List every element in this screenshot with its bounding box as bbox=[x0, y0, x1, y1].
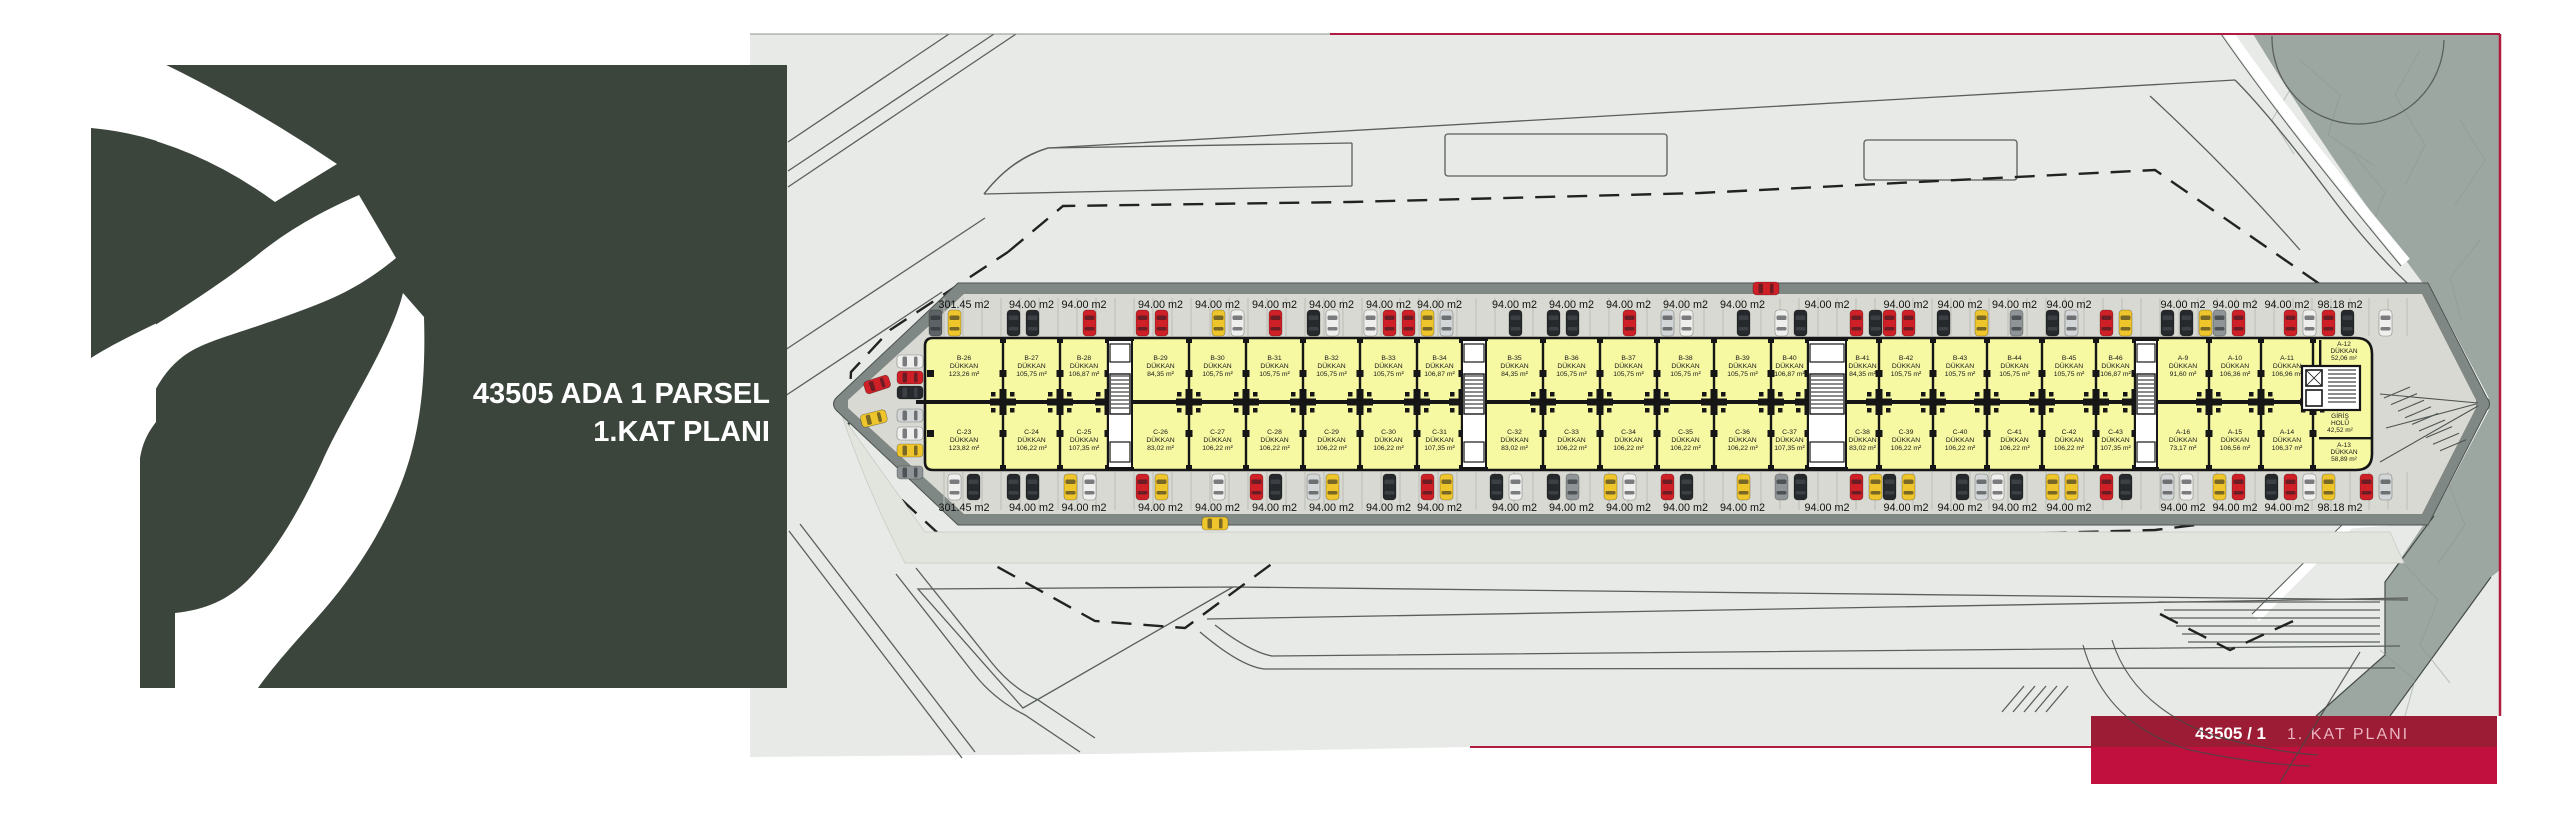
svg-text:94.00 m2: 94.00 m2 bbox=[1937, 299, 1982, 311]
svg-text:94.00 m2: 94.00 m2 bbox=[1309, 502, 1354, 514]
svg-text:DÜKKAN: DÜKKAN bbox=[1260, 436, 1288, 444]
svg-text:94.00 m2: 94.00 m2 bbox=[1366, 502, 1411, 514]
svg-text:94.00 m2: 94.00 m2 bbox=[2160, 299, 2205, 311]
svg-text:B-31: B-31 bbox=[1267, 355, 1282, 362]
svg-text:DÜKKAN: DÜKKAN bbox=[2000, 436, 2028, 444]
svg-text:A-9: A-9 bbox=[2178, 355, 2189, 362]
svg-text:B-34: B-34 bbox=[1432, 355, 1447, 362]
svg-text:105,75 m²: 105,75 m² bbox=[1316, 371, 1347, 378]
svg-text:106,22 m²: 106,22 m² bbox=[1891, 445, 1922, 452]
svg-text:94.00 m2: 94.00 m2 bbox=[1366, 299, 1411, 311]
svg-text:107,35 m²: 107,35 m² bbox=[1424, 445, 1455, 452]
svg-text:94.00 m2: 94.00 m2 bbox=[1009, 299, 1054, 311]
svg-text:DÜKKAN: DÜKKAN bbox=[2221, 362, 2249, 370]
svg-text:B-37: B-37 bbox=[1621, 355, 1636, 362]
svg-text:94.00 m2: 94.00 m2 bbox=[2264, 502, 2309, 514]
svg-text:105,75 m²: 105,75 m² bbox=[1259, 371, 1290, 378]
svg-text:C-34: C-34 bbox=[1621, 429, 1636, 436]
svg-text:C-33: C-33 bbox=[1564, 429, 1579, 436]
svg-text:106,87 m²: 106,87 m² bbox=[1774, 371, 1805, 378]
svg-text:106,87 m²: 106,87 m² bbox=[1424, 371, 1455, 378]
svg-text:94.00 m2: 94.00 m2 bbox=[1252, 299, 1297, 311]
svg-text:106,56 m²: 106,56 m² bbox=[2220, 445, 2251, 452]
svg-text:94.00 m2: 94.00 m2 bbox=[2264, 299, 2309, 311]
svg-text:94.00 m2: 94.00 m2 bbox=[1549, 502, 1594, 514]
svg-text:DÜKKAN: DÜKKAN bbox=[1775, 362, 1803, 370]
svg-text:B-38: B-38 bbox=[1678, 355, 1693, 362]
svg-text:94.00 m2: 94.00 m2 bbox=[1883, 502, 1928, 514]
svg-text:DÜKKAN: DÜKKAN bbox=[2273, 436, 2301, 444]
svg-text:94.00 m2: 94.00 m2 bbox=[1606, 502, 1651, 514]
svg-text:105,75 m²: 105,75 m² bbox=[1670, 371, 1701, 378]
svg-text:105,75 m²: 105,75 m² bbox=[1891, 371, 1922, 378]
svg-text:94.00 m2: 94.00 m2 bbox=[1061, 502, 1106, 514]
svg-text:C-23: C-23 bbox=[957, 429, 972, 436]
svg-text:B-40: B-40 bbox=[1782, 355, 1797, 362]
svg-text:DÜKKAN: DÜKKAN bbox=[1425, 362, 1453, 370]
svg-text:C-26: C-26 bbox=[1153, 429, 1168, 436]
svg-text:DÜKKAN: DÜKKAN bbox=[1374, 362, 1402, 370]
svg-text:DÜKKAN: DÜKKAN bbox=[2055, 436, 2083, 444]
svg-text:DÜKKAN: DÜKKAN bbox=[1614, 362, 1642, 370]
svg-text:DÜKKAN: DÜKKAN bbox=[2221, 436, 2249, 444]
svg-text:B-44: B-44 bbox=[2007, 355, 2022, 362]
svg-text:106,22 m²: 106,22 m² bbox=[1999, 445, 2030, 452]
svg-text:94.00 m2: 94.00 m2 bbox=[1252, 502, 1297, 514]
svg-text:94.00 m2: 94.00 m2 bbox=[1720, 299, 1765, 311]
svg-text:DÜKKAN: DÜKKAN bbox=[1425, 436, 1453, 444]
svg-text:106,22 m²: 106,22 m² bbox=[1373, 445, 1404, 452]
svg-text:C-27: C-27 bbox=[1210, 429, 1225, 436]
svg-text:105,75 m²: 105,75 m² bbox=[1556, 371, 1587, 378]
svg-text:B-46: B-46 bbox=[2108, 355, 2123, 362]
svg-text:52,06 m²: 52,06 m² bbox=[2331, 355, 2357, 362]
svg-text:DÜKKAN: DÜKKAN bbox=[1671, 362, 1699, 370]
svg-text:94.00 m2: 94.00 m2 bbox=[1138, 502, 1183, 514]
svg-text:106,22 m²: 106,22 m² bbox=[1316, 445, 1347, 452]
svg-text:58,89 m²: 58,89 m² bbox=[2331, 456, 2357, 463]
svg-text:94.00 m2: 94.00 m2 bbox=[1492, 502, 1537, 514]
svg-text:105,75 m²: 105,75 m² bbox=[1016, 371, 1047, 378]
svg-text:DÜKKAN: DÜKKAN bbox=[1374, 436, 1402, 444]
svg-text:84,35 m²: 84,35 m² bbox=[1849, 371, 1877, 378]
svg-text:DÜKKAN: DÜKKAN bbox=[1146, 362, 1174, 370]
svg-text:C-37: C-37 bbox=[1782, 429, 1797, 436]
svg-text:106,87 m²: 106,87 m² bbox=[2100, 371, 2131, 378]
svg-text:A-10: A-10 bbox=[2228, 355, 2243, 362]
svg-text:C-28: C-28 bbox=[1267, 429, 1282, 436]
svg-text:94.00 m2: 94.00 m2 bbox=[2046, 502, 2091, 514]
svg-text:94.00 m2: 94.00 m2 bbox=[1883, 299, 1928, 311]
svg-text:123,82 m²: 123,82 m² bbox=[949, 445, 980, 452]
svg-text:94.00 m2: 94.00 m2 bbox=[1492, 299, 1537, 311]
svg-text:1.KAT PLANI: 1.KAT PLANI bbox=[593, 416, 770, 448]
svg-text:94.00 m2: 94.00 m2 bbox=[1606, 299, 1651, 311]
svg-text:107,35 m²: 107,35 m² bbox=[1774, 445, 1805, 452]
svg-text:83,02 m²: 83,02 m² bbox=[1849, 445, 1877, 452]
svg-text:C-31: C-31 bbox=[1432, 429, 1447, 436]
svg-text:DÜKKAN: DÜKKAN bbox=[1317, 362, 1345, 370]
svg-text:106,96 m²: 106,96 m² bbox=[2272, 371, 2303, 378]
svg-text:A-13: A-13 bbox=[2337, 442, 2351, 449]
svg-text:123,26 m²: 123,26 m² bbox=[949, 371, 980, 378]
svg-text:B-39: B-39 bbox=[1735, 355, 1750, 362]
svg-text:B-28: B-28 bbox=[1077, 355, 1092, 362]
svg-text:94.00 m2: 94.00 m2 bbox=[1549, 299, 1594, 311]
svg-text:94.00 m2: 94.00 m2 bbox=[1992, 299, 2037, 311]
svg-text:DÜKKAN: DÜKKAN bbox=[1070, 362, 1098, 370]
svg-text:DÜKKAN: DÜKKAN bbox=[1728, 362, 1756, 370]
svg-text:98.18 m2: 98.18 m2 bbox=[2317, 502, 2362, 514]
svg-text:106,22 m²: 106,22 m² bbox=[1727, 445, 1758, 452]
svg-text:DÜKKAN: DÜKKAN bbox=[1946, 436, 1974, 444]
svg-text:94.00 m2: 94.00 m2 bbox=[1804, 299, 1849, 311]
svg-text:105,75 m²: 105,75 m² bbox=[1727, 371, 1758, 378]
svg-text:DÜKKAN: DÜKKAN bbox=[1500, 436, 1528, 444]
svg-text:105,75 m²: 105,75 m² bbox=[2054, 371, 2085, 378]
svg-text:B-42: B-42 bbox=[1899, 355, 1914, 362]
svg-text:DÜKKAN: DÜKKAN bbox=[950, 362, 978, 370]
svg-text:C-35: C-35 bbox=[1678, 429, 1693, 436]
svg-text:B-33: B-33 bbox=[1381, 355, 1396, 362]
svg-text:105,75 m²: 105,75 m² bbox=[1945, 371, 1976, 378]
svg-text:DÜKKAN: DÜKKAN bbox=[1500, 362, 1528, 370]
svg-text:C-25: C-25 bbox=[1077, 429, 1092, 436]
svg-text:DÜKKAN: DÜKKAN bbox=[1070, 436, 1098, 444]
svg-text:94.00 m2: 94.00 m2 bbox=[2160, 502, 2205, 514]
svg-text:106,36 m²: 106,36 m² bbox=[2220, 371, 2251, 378]
svg-text:C-39: C-39 bbox=[1899, 429, 1914, 436]
svg-text:DÜKKAN: DÜKKAN bbox=[2273, 362, 2301, 370]
svg-text:DÜKKAN: DÜKKAN bbox=[1203, 436, 1231, 444]
svg-text:B-43: B-43 bbox=[1953, 355, 1968, 362]
svg-text:301.45 m2: 301.45 m2 bbox=[938, 299, 989, 311]
svg-text:B-35: B-35 bbox=[1507, 355, 1522, 362]
svg-text:C-38: C-38 bbox=[1855, 429, 1870, 436]
svg-text:94.00 m2: 94.00 m2 bbox=[1009, 502, 1054, 514]
svg-text:73,17 m²: 73,17 m² bbox=[2170, 445, 2198, 452]
svg-text:106,22 m²: 106,22 m² bbox=[1613, 445, 1644, 452]
svg-text:A-12: A-12 bbox=[2337, 341, 2351, 348]
svg-text:DÜKKAN: DÜKKAN bbox=[1317, 436, 1345, 444]
svg-text:DÜKKAN: DÜKKAN bbox=[1848, 436, 1876, 444]
svg-text:DÜKKAN: DÜKKAN bbox=[1946, 362, 1974, 370]
svg-text:C-43: C-43 bbox=[2108, 429, 2123, 436]
svg-text:105,75 m²: 105,75 m² bbox=[1373, 371, 1404, 378]
svg-text:106,22 m²: 106,22 m² bbox=[1016, 445, 1047, 452]
svg-text:94.00 m2: 94.00 m2 bbox=[1720, 502, 1765, 514]
svg-text:DÜKKAN: DÜKKAN bbox=[1017, 436, 1045, 444]
svg-text:B-29: B-29 bbox=[1153, 355, 1168, 362]
svg-text:DÜKKAN: DÜKKAN bbox=[1614, 436, 1642, 444]
svg-text:C-24: C-24 bbox=[1024, 429, 1039, 436]
svg-text:98.18 m2: 98.18 m2 bbox=[2317, 299, 2362, 311]
svg-text:94.00 m2: 94.00 m2 bbox=[1417, 299, 1462, 311]
svg-text:91,60 m²: 91,60 m² bbox=[2170, 371, 2198, 378]
svg-text:106,22 m²: 106,22 m² bbox=[2054, 445, 2085, 452]
svg-text:DÜKKAN: DÜKKAN bbox=[2101, 436, 2129, 444]
svg-text:94.00 m2: 94.00 m2 bbox=[1195, 502, 1240, 514]
svg-text:DÜKKAN: DÜKKAN bbox=[2055, 362, 2083, 370]
svg-text:94.00 m2: 94.00 m2 bbox=[1061, 299, 1106, 311]
svg-text:106,22 m²: 106,22 m² bbox=[1670, 445, 1701, 452]
svg-text:A-14: A-14 bbox=[2280, 429, 2295, 436]
svg-text:301.45 m2: 301.45 m2 bbox=[938, 502, 989, 514]
svg-text:C-29: C-29 bbox=[1324, 429, 1339, 436]
svg-text:DÜKKAN: DÜKKAN bbox=[2101, 362, 2129, 370]
svg-text:43505 ADA 1 PARSEL: 43505 ADA 1 PARSEL bbox=[473, 378, 770, 410]
svg-text:DÜKKAN: DÜKKAN bbox=[1892, 362, 1920, 370]
svg-text:C-30: C-30 bbox=[1381, 429, 1396, 436]
svg-text:94.00 m2: 94.00 m2 bbox=[1992, 502, 2037, 514]
svg-text:B-27: B-27 bbox=[1024, 355, 1039, 362]
svg-text:106,22 m²: 106,22 m² bbox=[1259, 445, 1290, 452]
svg-text:DÜKKAN: DÜKKAN bbox=[1557, 436, 1585, 444]
svg-text:A-11: A-11 bbox=[2280, 355, 2294, 362]
svg-text:94.00 m2: 94.00 m2 bbox=[1937, 502, 1982, 514]
svg-text:94.00 m2: 94.00 m2 bbox=[1663, 299, 1708, 311]
svg-text:83,02 m²: 83,02 m² bbox=[1147, 445, 1175, 452]
svg-text:DÜKKAN: DÜKKAN bbox=[2169, 362, 2197, 370]
svg-text:105,75 m²: 105,75 m² bbox=[1999, 371, 2030, 378]
svg-text:A-15: A-15 bbox=[2228, 429, 2243, 436]
svg-text:107,35 m²: 107,35 m² bbox=[1069, 445, 1100, 452]
svg-text:B-36: B-36 bbox=[1564, 355, 1579, 362]
svg-text:HOLÜ: HOLÜ bbox=[2331, 419, 2349, 427]
svg-text:106,22 m²: 106,22 m² bbox=[1202, 445, 1233, 452]
svg-text:42,52 m²: 42,52 m² bbox=[2327, 427, 2353, 434]
svg-text:DÜKKAN: DÜKKAN bbox=[1260, 362, 1288, 370]
svg-text:DÜKKAN: DÜKKAN bbox=[1671, 436, 1699, 444]
svg-text:A-16: A-16 bbox=[2176, 429, 2191, 436]
svg-text:94.00 m2: 94.00 m2 bbox=[2046, 299, 2091, 311]
svg-text:94.00 m2: 94.00 m2 bbox=[1804, 502, 1849, 514]
svg-text:DÜKKAN: DÜKKAN bbox=[1017, 362, 1045, 370]
svg-text:94.00 m2: 94.00 m2 bbox=[1195, 299, 1240, 311]
svg-text:84,35 m²: 84,35 m² bbox=[1147, 371, 1175, 378]
svg-text:B-41: B-41 bbox=[1855, 355, 1870, 362]
svg-text:DÜKKAN: DÜKKAN bbox=[2000, 362, 2028, 370]
svg-text:DÜKKAN: DÜKKAN bbox=[950, 436, 978, 444]
svg-text:94.00 m2: 94.00 m2 bbox=[1138, 299, 1183, 311]
svg-text:94.00 m2: 94.00 m2 bbox=[2212, 299, 2257, 311]
svg-text:94.00 m2: 94.00 m2 bbox=[1309, 299, 1354, 311]
svg-text:107,35 m²: 107,35 m² bbox=[2100, 445, 2131, 452]
svg-text:B-30: B-30 bbox=[1210, 355, 1225, 362]
svg-text:C-41: C-41 bbox=[2007, 429, 2022, 436]
svg-text:DÜKKAN: DÜKKAN bbox=[2169, 436, 2197, 444]
svg-text:105,75 m²: 105,75 m² bbox=[1202, 371, 1233, 378]
svg-text:105,75 m²: 105,75 m² bbox=[1613, 371, 1644, 378]
svg-text:DÜKKAN: DÜKKAN bbox=[1557, 362, 1585, 370]
svg-text:B-32: B-32 bbox=[1324, 355, 1339, 362]
svg-text:C-40: C-40 bbox=[1953, 429, 1968, 436]
svg-text:B-26: B-26 bbox=[957, 355, 972, 362]
svg-text:DÜKKAN: DÜKKAN bbox=[2330, 448, 2357, 456]
svg-text:DÜKKAN: DÜKKAN bbox=[1848, 362, 1876, 370]
svg-text:B-45: B-45 bbox=[2062, 355, 2077, 362]
svg-text:DÜKKAN: DÜKKAN bbox=[1728, 436, 1756, 444]
svg-text:C-42: C-42 bbox=[2062, 429, 2077, 436]
svg-text:DÜKKAN: DÜKKAN bbox=[1146, 436, 1174, 444]
svg-text:106,87 m²: 106,87 m² bbox=[1069, 371, 1100, 378]
svg-text:94.00 m2: 94.00 m2 bbox=[1417, 502, 1462, 514]
svg-text:83,02 m²: 83,02 m² bbox=[1501, 445, 1529, 452]
svg-text:DÜKKAN: DÜKKAN bbox=[1892, 436, 1920, 444]
svg-text:GİRİŞ: GİRİŞ bbox=[2331, 411, 2349, 420]
svg-text:DÜKKAN: DÜKKAN bbox=[1203, 362, 1231, 370]
svg-text:94.00 m2: 94.00 m2 bbox=[1663, 502, 1708, 514]
svg-text:106,22 m²: 106,22 m² bbox=[1945, 445, 1976, 452]
svg-text:C-36: C-36 bbox=[1735, 429, 1750, 436]
svg-text:94.00 m2: 94.00 m2 bbox=[2212, 502, 2257, 514]
svg-text:84,35 m²: 84,35 m² bbox=[1501, 371, 1529, 378]
svg-text:DÜKKAN: DÜKKAN bbox=[2330, 347, 2357, 355]
svg-text:C-32: C-32 bbox=[1507, 429, 1522, 436]
svg-text:DÜKKAN: DÜKKAN bbox=[1775, 436, 1803, 444]
svg-text:106,22 m²: 106,22 m² bbox=[1556, 445, 1587, 452]
svg-text:106,37 m²: 106,37 m² bbox=[2272, 445, 2303, 452]
